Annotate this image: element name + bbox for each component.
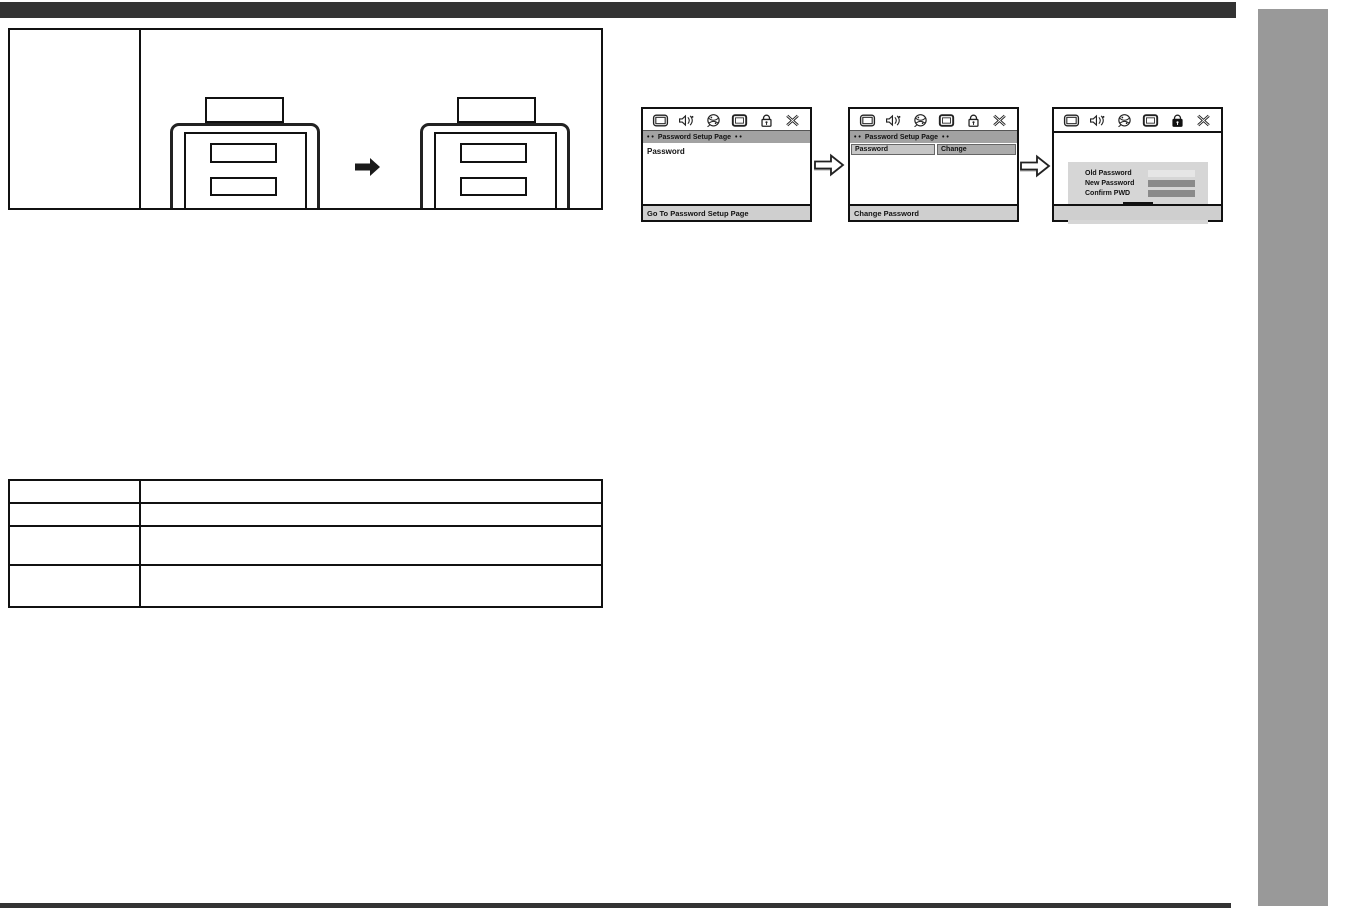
osd-toolbar xyxy=(643,109,810,130)
password-lock-icon[interactable] xyxy=(1169,113,1186,128)
table-cell xyxy=(10,566,141,606)
exit-icon[interactable] xyxy=(1195,113,1212,128)
osd-toolbar xyxy=(850,109,1017,130)
new-password-label: New Password xyxy=(1085,180,1148,187)
table-row xyxy=(10,525,601,564)
video-setup-icon[interactable] xyxy=(938,113,955,128)
table-row xyxy=(10,564,601,606)
status-text: Go To Password Setup Page xyxy=(647,209,749,218)
status-text: Change Password xyxy=(854,209,919,218)
bottom-rule xyxy=(0,903,1231,908)
table-row xyxy=(10,481,601,502)
tv-top-box xyxy=(205,97,284,123)
osd-body: Password xyxy=(643,143,810,156)
osd-status-bar: Go To Password Setup Page xyxy=(643,204,810,220)
chapter-side-tab xyxy=(1258,9,1328,906)
general-setup-icon[interactable] xyxy=(1063,113,1080,128)
osd-page-title: • • Password Setup Page • • xyxy=(850,130,1017,143)
tv-screen-box xyxy=(210,177,277,196)
tv-screen-box xyxy=(460,143,527,163)
table-cell xyxy=(141,527,601,564)
title-text: Password Setup Page xyxy=(865,134,938,141)
right-arrow-icon xyxy=(355,157,381,177)
osd-toolbar xyxy=(1054,109,1221,133)
menu-item-password[interactable]: Password xyxy=(643,143,810,156)
video-setup-icon[interactable] xyxy=(1142,113,1159,128)
menu-item-password[interactable]: Password xyxy=(851,144,935,155)
new-password-input[interactable] xyxy=(1148,180,1195,187)
osd-body: Password Change xyxy=(850,143,1017,155)
password-lock-icon[interactable] xyxy=(965,113,982,128)
table-cell xyxy=(10,504,141,525)
table-cell xyxy=(10,527,141,564)
tv-diagram-cell xyxy=(141,30,601,208)
title-text: Password Setup Page xyxy=(658,134,731,141)
tv-screen-box xyxy=(460,177,527,196)
audio-setup-icon[interactable] xyxy=(1089,113,1106,128)
osd-screen-3: Old Password New Password Confirm PWD OK xyxy=(1052,107,1223,222)
preferences-icon[interactable] xyxy=(912,113,929,128)
menu-value-change[interactable]: Change xyxy=(937,144,1016,155)
notes-table xyxy=(8,479,603,608)
general-setup-icon[interactable] xyxy=(652,113,669,128)
osd-screen-2: • • Password Setup Page • • Password Cha… xyxy=(848,107,1019,222)
tv-top-box xyxy=(457,97,536,123)
old-password-row: Old Password xyxy=(1068,170,1208,177)
general-setup-icon[interactable] xyxy=(859,113,876,128)
tv-screen-box xyxy=(210,143,277,163)
title-dots: • • xyxy=(735,134,742,141)
osd-screen-1: • • Password Setup Page • • Password Go … xyxy=(641,107,812,222)
exit-icon[interactable] xyxy=(991,113,1008,128)
table-cell xyxy=(141,566,601,606)
audio-setup-icon[interactable] xyxy=(678,113,695,128)
top-rule xyxy=(0,2,1236,18)
audio-setup-icon[interactable] xyxy=(885,113,902,128)
osd-status-bar xyxy=(1054,204,1221,220)
title-dots: • • xyxy=(647,134,654,141)
next-step-arrow-icon xyxy=(1019,150,1053,182)
new-password-row: New Password xyxy=(1068,180,1208,187)
title-dots: • • xyxy=(854,134,861,141)
preferences-icon[interactable] xyxy=(705,113,722,128)
table-cell xyxy=(141,504,601,525)
osd-page-title: • • Password Setup Page • • xyxy=(643,130,810,143)
exit-icon[interactable] xyxy=(784,113,801,128)
table-cell xyxy=(10,30,141,208)
preferences-icon[interactable] xyxy=(1116,113,1133,128)
old-password-input[interactable] xyxy=(1148,170,1195,177)
tv-diagram-table xyxy=(8,28,603,210)
table-row xyxy=(10,502,601,525)
old-password-label: Old Password xyxy=(1085,170,1148,177)
manual-page: • • Password Setup Page • • Password Go … xyxy=(0,0,1372,908)
video-setup-icon[interactable] xyxy=(731,113,748,128)
confirm-password-row: Confirm PWD xyxy=(1068,190,1208,197)
osd-status-bar: Change Password xyxy=(850,204,1017,220)
confirm-password-label: Confirm PWD xyxy=(1085,190,1148,197)
title-dots: • • xyxy=(942,134,949,141)
confirm-password-input[interactable] xyxy=(1148,190,1195,197)
password-lock-icon[interactable] xyxy=(758,113,775,128)
table-cell xyxy=(141,481,601,502)
menu-row: Password Change xyxy=(850,143,1017,155)
table-cell xyxy=(10,481,141,502)
next-step-arrow-icon xyxy=(813,149,847,181)
